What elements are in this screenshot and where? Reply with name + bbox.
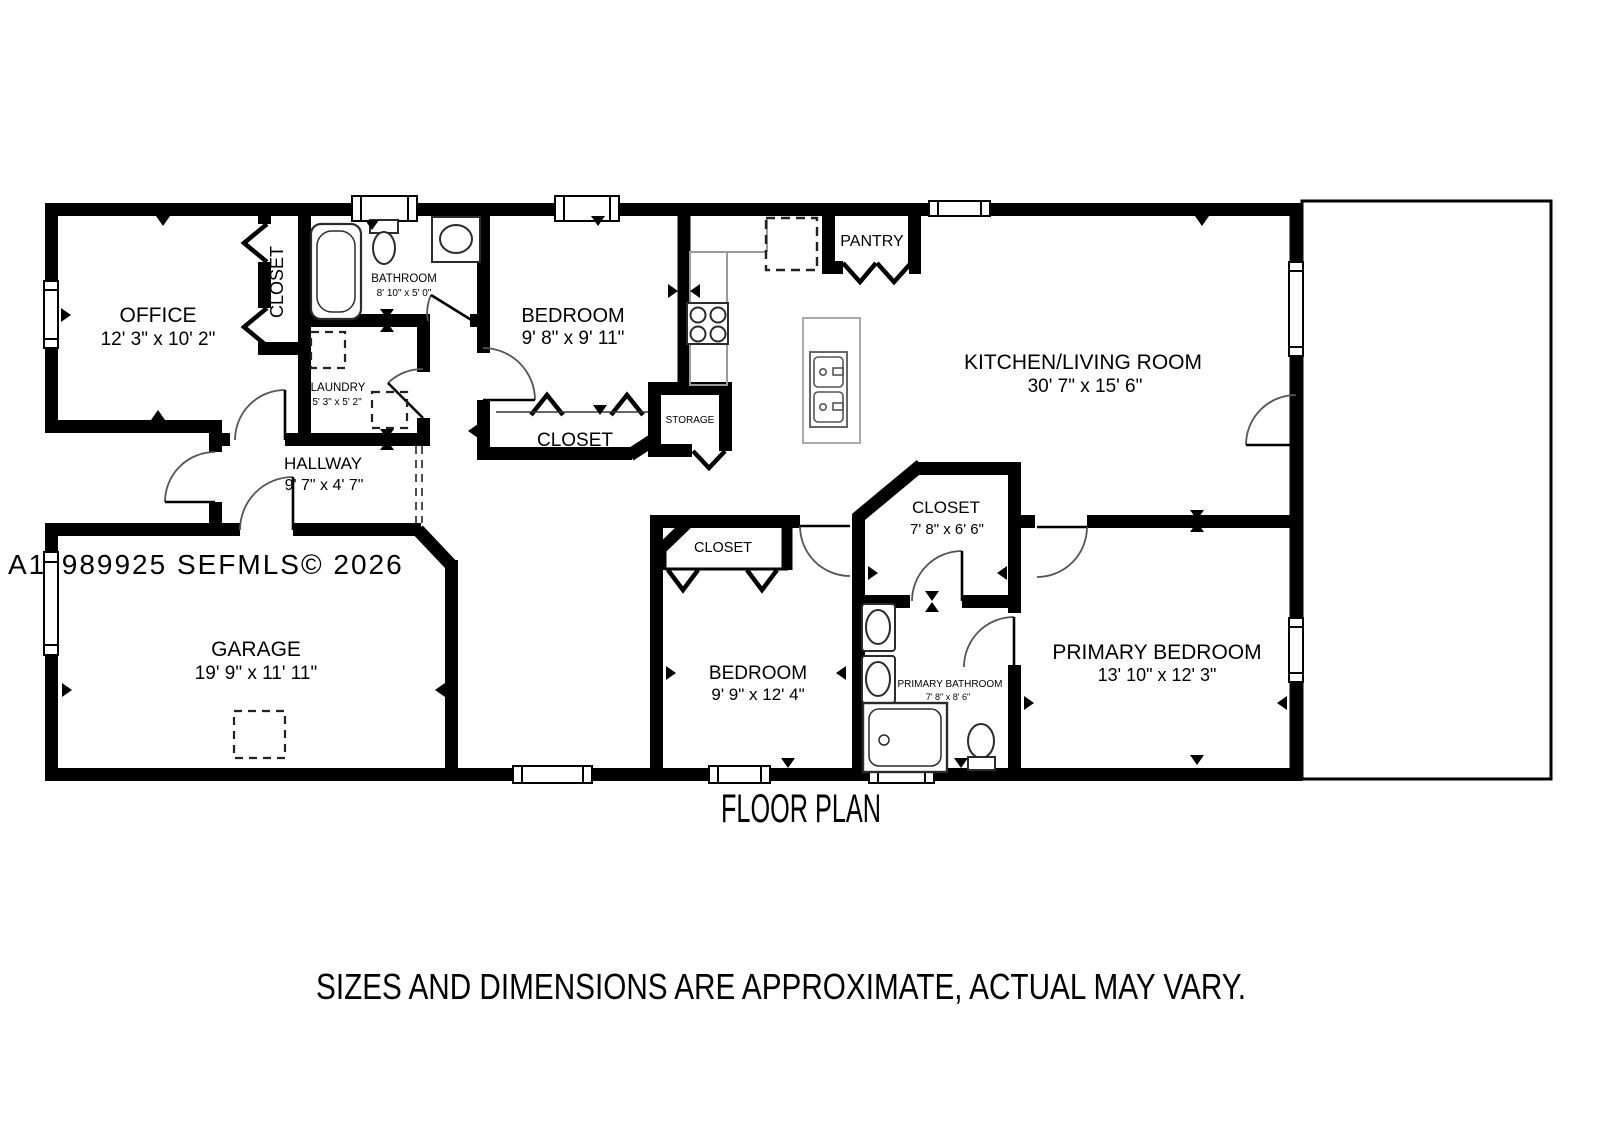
office-dims: 12' 3" x 10' 2" [101, 329, 216, 350]
refrigerator-box [766, 218, 817, 270]
shower-icon [863, 703, 947, 772]
window-bedroom-bottom [709, 766, 770, 783]
laundry-door-leaf [388, 383, 423, 418]
bathroom-sink-icon [432, 217, 480, 262]
windows [44, 196, 1303, 783]
bedroom-top-closet-label: CLOSET [537, 430, 613, 451]
bedroom-top-label: BEDROOM [521, 305, 624, 327]
bedroom-bottom-dims: 9' 9" x 12' 4" [711, 685, 804, 704]
garage-utility-box [234, 711, 285, 758]
bathroom-door-leaf [431, 295, 473, 321]
bedroom-bottom-closet-bifold [668, 570, 777, 590]
watermark-text: A11989925 SEFMLS© 2026 [8, 549, 404, 580]
primary-toilet-icon [968, 724, 995, 770]
garage-label: GARAGE [211, 638, 301, 661]
bathroom-label: BATHROOM [371, 273, 437, 285]
bedroom-bottom-closet-label: CLOSET [694, 540, 752, 556]
bedroom-bottom-door-arc [800, 526, 850, 576]
patio-outline [1302, 201, 1551, 779]
office-closet-label: CLOSET [267, 246, 287, 318]
hallway-dims: 9' 7" x 4' 7" [285, 477, 364, 494]
pantry-label: PANTRY [840, 233, 904, 250]
kitchen-living-label: KITCHEN/LIVING ROOM [964, 351, 1202, 374]
entry-door-arc [165, 452, 215, 502]
primary-closet-label: CLOSET [912, 498, 980, 517]
garage-dims: 19' 9" x 11' 11" [195, 663, 318, 684]
window-bedroom-top [555, 196, 619, 221]
window-living-right [1289, 262, 1303, 356]
storage-bifold [693, 451, 725, 468]
disclaimer-text: SIZES AND DIMENSIONS ARE APPROXIMATE, AC… [316, 966, 1246, 1007]
bathroom-dims: 8' 10" x 5' 0" [377, 288, 432, 299]
bedroom-top-dims: 9' 8" x 9' 11" [522, 328, 625, 349]
kitchen-living-dims: 30' 7" x 15' 6" [1028, 376, 1143, 397]
window-garage-left [44, 552, 58, 655]
primary-bathroom-dims: 7' 8" x 8' 6" [926, 692, 970, 702]
primary-bedroom-door-arc [1037, 527, 1087, 577]
patio-door-arc [1246, 395, 1296, 445]
primary-bathroom-label: PRIMARY BATHROOM [897, 679, 1002, 690]
window-bathroom-top [352, 196, 417, 221]
laundry-dims: 5' 3" x 5' 2" [312, 397, 362, 408]
bedroom-bottom-label: BEDROOM [709, 663, 807, 684]
bathtub-icon [311, 224, 361, 319]
primary-bath-door-arc [964, 617, 1014, 667]
floor-plan-canvas: A11989925 SEFMLS© 2026 [0, 0, 1600, 1130]
primary-vanity-icons [862, 604, 895, 703]
pantry-double-door [843, 263, 911, 282]
window-living-bottom [513, 766, 592, 783]
primary-bedroom-label: PRIMARY BEDROOM [1052, 641, 1261, 664]
office-label: OFFICE [120, 304, 197, 327]
laundry-label: LAUNDRY [311, 382, 366, 394]
stove-icon [687, 303, 728, 344]
kitchen-island [803, 318, 860, 443]
floor-plan-title: FLOOR PLAN [721, 787, 881, 831]
primary-bedroom-dims: 13' 10" x 12' 3" [1098, 665, 1217, 685]
window-office-left [44, 281, 58, 348]
bedroom-top-door-arc [483, 348, 535, 400]
hallway-opening-dashed [416, 446, 422, 523]
office-door-arc [235, 390, 285, 440]
hallway-label: HALLWAY [284, 454, 362, 473]
window-primary-bedroom-right [1289, 618, 1303, 682]
dimension-ticks [61, 216, 1287, 768]
window-kitchen-top [929, 201, 990, 216]
storage-label: STORAGE [666, 415, 715, 426]
primary-closet-dims: 7' 8" x 6' 6" [910, 521, 984, 538]
floor-plan-page: A11989925 SEFMLS© 2026 [0, 0, 1600, 1130]
